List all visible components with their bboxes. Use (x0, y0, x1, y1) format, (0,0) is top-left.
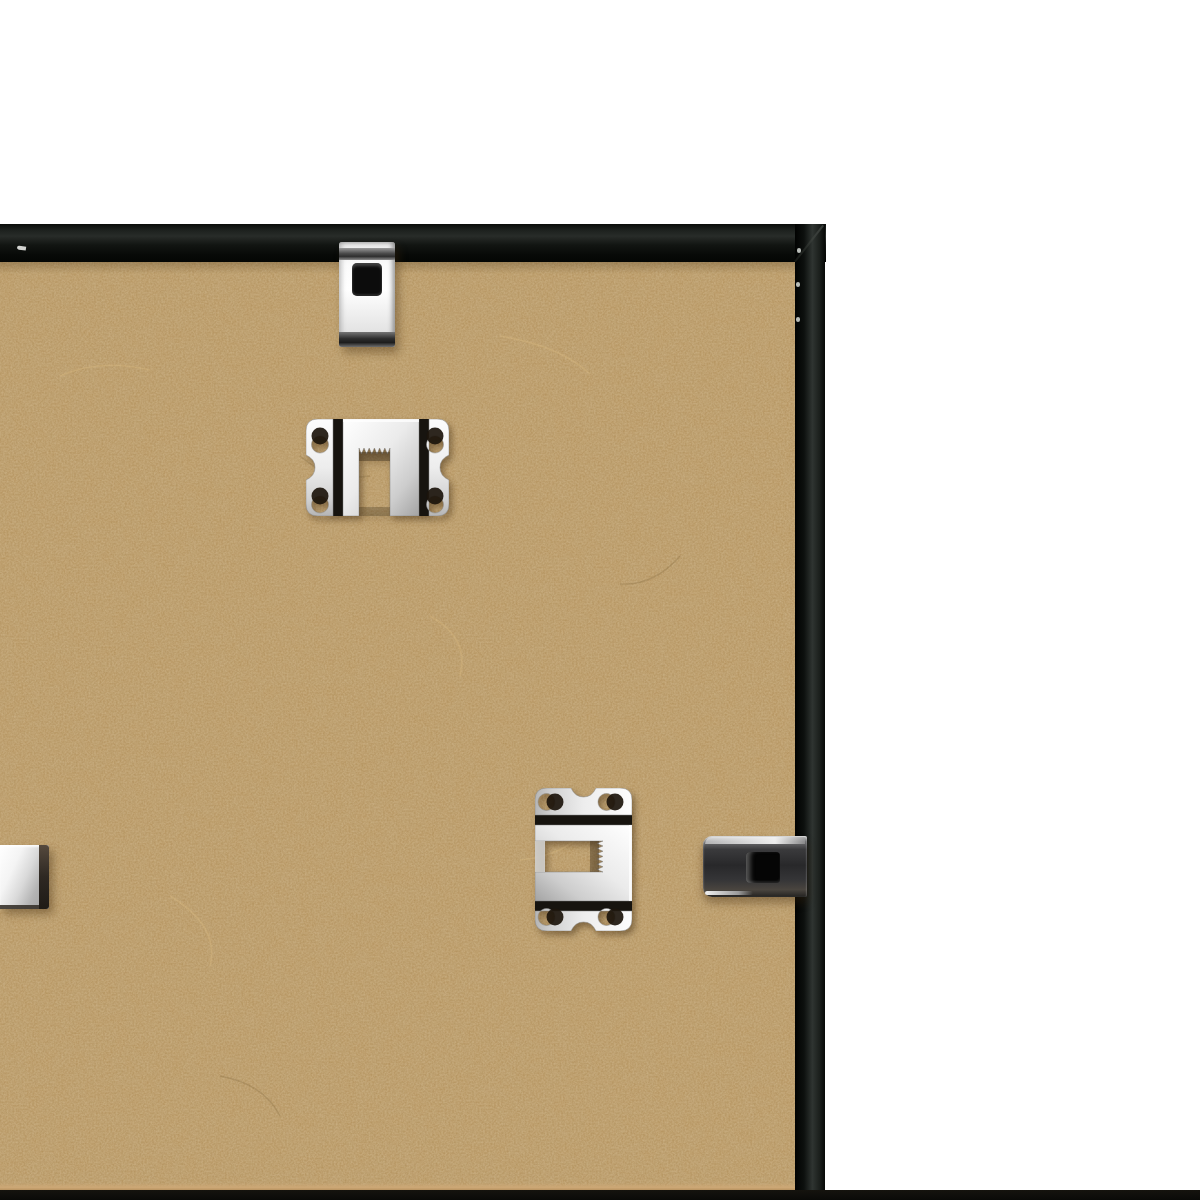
right-spring-clip (703, 836, 807, 897)
frame-bottom-edge (0, 1190, 1200, 1200)
staple-glint (796, 317, 800, 322)
staple-glint (796, 282, 800, 287)
sawtooth-hanger-vertical (535, 788, 632, 931)
clip-top-sheen (705, 837, 805, 844)
clip-fold-band (339, 248, 395, 260)
left-spring-clip (0, 845, 49, 909)
top-spring-clip (339, 242, 395, 347)
clip-bottom-highlight (705, 891, 753, 895)
staple-glint (797, 248, 801, 253)
frame-back-photo (0, 0, 1200, 1200)
frame-top-edge (0, 224, 826, 262)
clip-square-hole (352, 263, 382, 296)
frame-right-edge (795, 224, 825, 1200)
clip-bottom-band (0, 905, 39, 909)
sawtooth-hanger-horizontal (306, 419, 449, 516)
clip-dark-edge (39, 845, 49, 909)
clip-bottom-band (339, 332, 395, 347)
backing-board (0, 256, 798, 1200)
clip-square-hole (746, 852, 780, 883)
